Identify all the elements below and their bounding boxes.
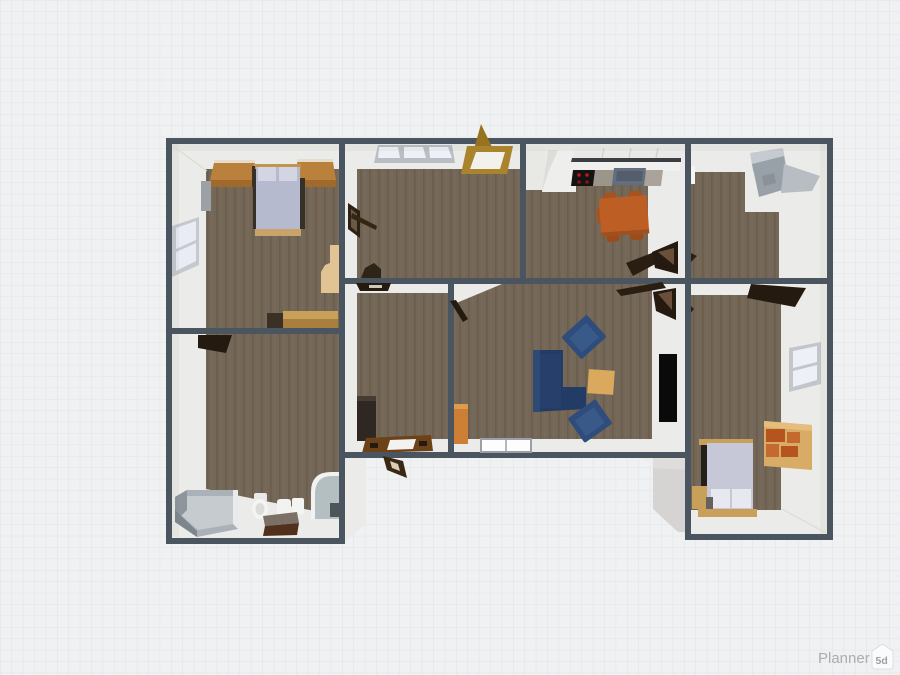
svg-text:5d: 5d — [876, 655, 888, 667]
svg-text:Planner: Planner — [818, 650, 870, 667]
